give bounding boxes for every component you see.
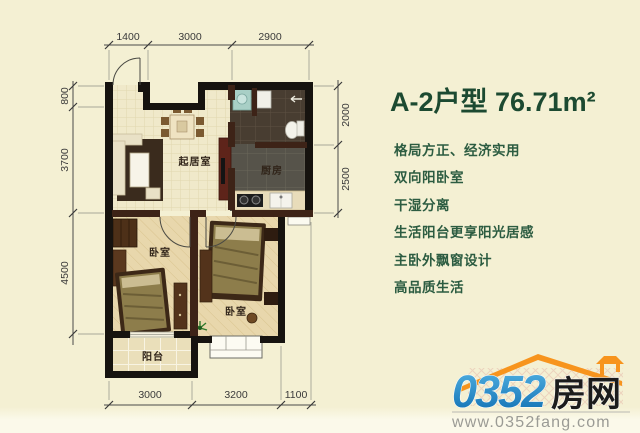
feature-item: 双向阳卧室: [394, 164, 629, 191]
feature-item: 主卧外飘窗设计: [394, 247, 629, 274]
balcony-label: 阳台: [142, 350, 164, 363]
feature-item: 格局方正、经济实用: [394, 137, 629, 164]
dim-bottom-1: 3000: [138, 389, 162, 401]
table-decor: [177, 121, 187, 132]
nightstand: [264, 292, 278, 305]
floorplan-page: 起居室 厨房 卧室 卧室 阳台 1400 3000 29: [0, 0, 640, 433]
stool: [247, 313, 257, 323]
dim-right-2: 2500: [340, 167, 352, 191]
dresser: [174, 283, 187, 329]
armchair: [146, 188, 160, 199]
kitchen-fixtures: [233, 191, 307, 210]
coffee-table: [130, 153, 149, 187]
knob: [179, 294, 181, 296]
toilet: [286, 122, 299, 139]
dim-top-2: 3000: [178, 31, 202, 43]
bath-cabinet: [257, 91, 271, 108]
dim-bottom-2: 3200: [224, 389, 248, 401]
wardrobe: [113, 219, 137, 247]
feature-item: 干湿分离: [394, 192, 629, 219]
dim-left-2: 3700: [59, 148, 71, 172]
faucet: [280, 196, 283, 199]
logo-url: www.0352fang.com: [451, 414, 611, 431]
dim-left-1: 800: [59, 87, 71, 105]
burner: [240, 196, 248, 204]
plan-title: A-2户型 76.71m²: [390, 80, 635, 119]
dim-top-3: 2900: [258, 31, 282, 43]
logo-name: 房网: [551, 375, 621, 414]
entry-door: [113, 58, 140, 85]
sofa: [112, 141, 125, 195]
bay-window: [210, 336, 262, 358]
nightstand: [264, 228, 278, 241]
dresser: [200, 250, 212, 302]
living-room-label: 起居室: [178, 155, 212, 168]
knob: [179, 314, 181, 316]
bedroom-right-label: 卧室: [225, 305, 247, 318]
feature-item: 高品质生活: [394, 274, 629, 301]
site-logo: 0352 房网 www.0352fang.com: [450, 348, 638, 432]
bedroom-left-label: 卧室: [149, 246, 171, 259]
tv: [221, 158, 225, 184]
washer-drum: [237, 94, 247, 104]
logo-number: 0352: [452, 366, 546, 417]
feature-item: 生活阳台更享阳光居感: [394, 219, 629, 246]
bed: [206, 221, 266, 302]
dim-top-1: 1400: [116, 31, 140, 43]
dim-bottom-3: 1100: [285, 389, 308, 401]
dim-right-1: 2000: [340, 103, 352, 127]
bed: [115, 268, 171, 337]
toilet-tank: [297, 121, 304, 136]
dim-left-3: 4500: [59, 261, 71, 285]
kitchen-label: 厨房: [261, 164, 283, 177]
service-window: [288, 217, 310, 225]
feature-list: 格局方正、经济实用 双向阳卧室 干湿分离 生活阳台更享阳光居感 主卧外飘窗设计 …: [394, 137, 629, 301]
burner: [252, 196, 260, 204]
